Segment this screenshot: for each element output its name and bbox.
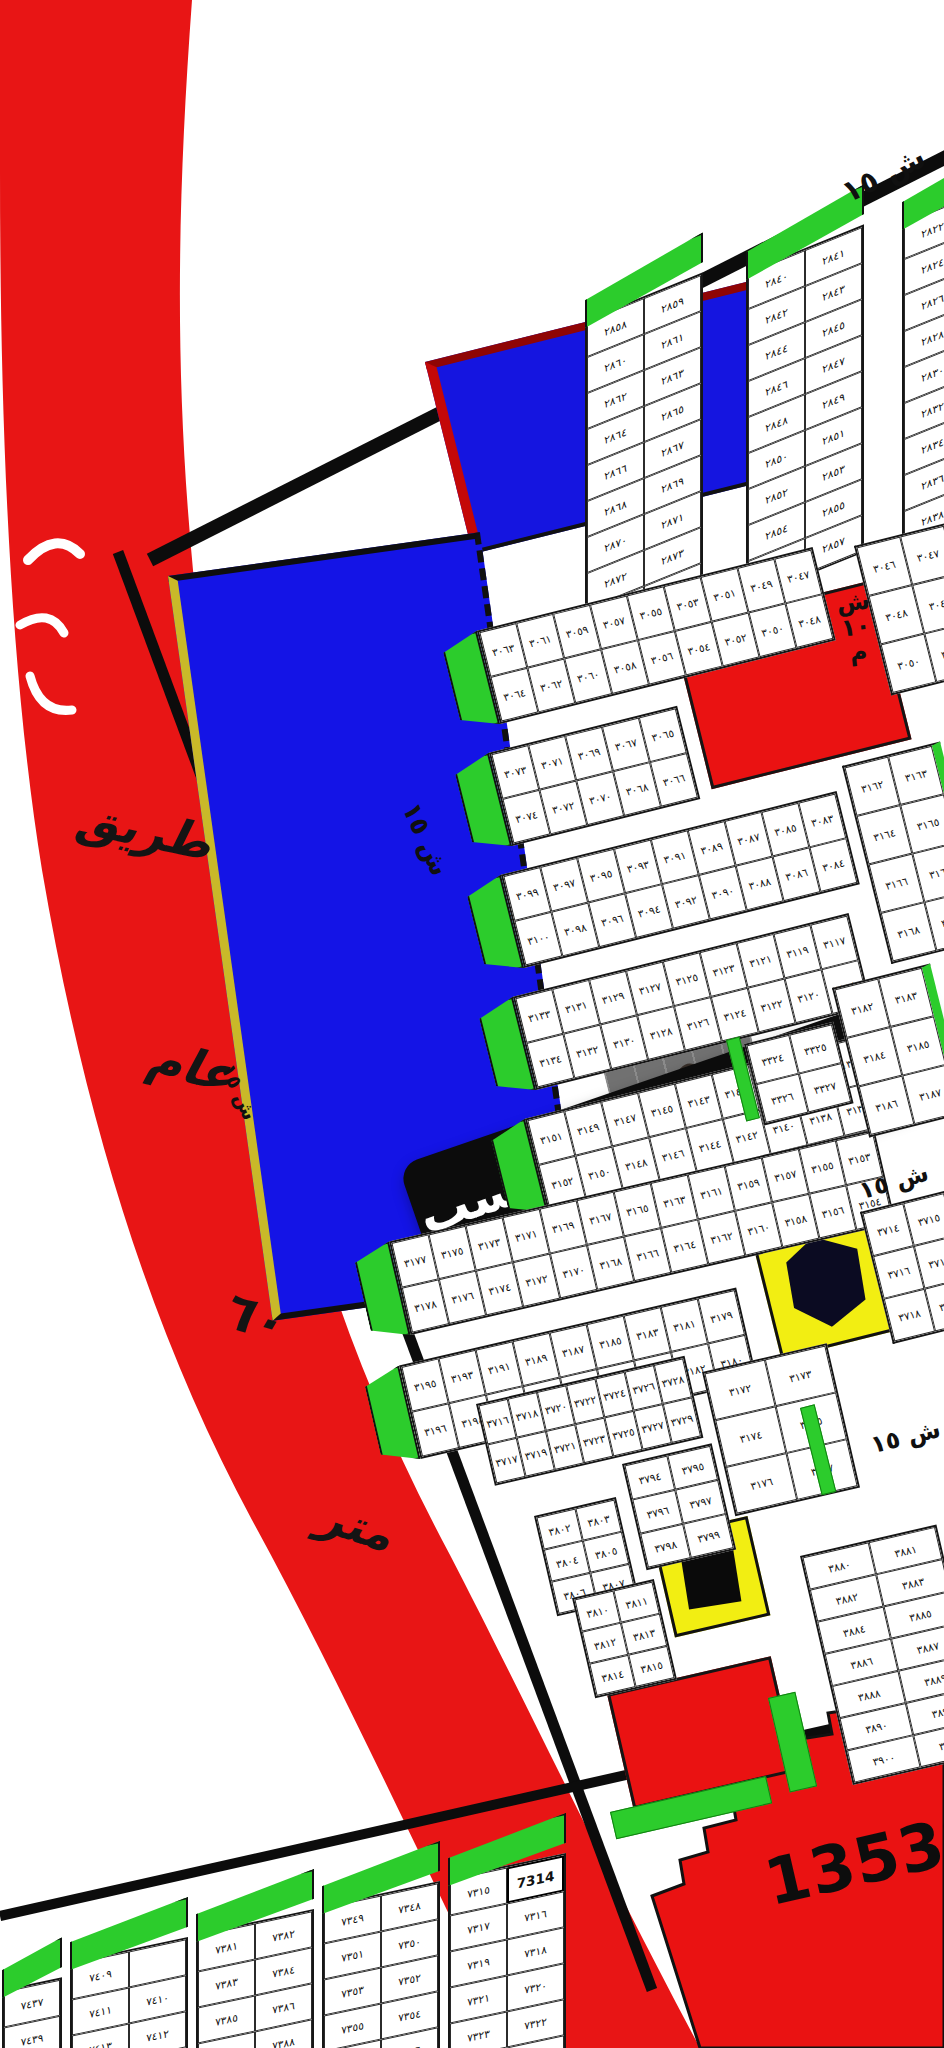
- bottom-column-7348-7361: ٧٣٤٨٧٣٤٩٧٣٥٠٧٣٥١٧٣٥٢٧٣٥٣٧٣٥٤٧٣٥٥٧٣٥٦٧٣٥٧…: [322, 1841, 440, 2048]
- plot-column-2840-2857: ٢٨٤١٢٨٤٠٢٨٤٣٢٨٤٢٢٨٤٥٢٨٤٤٢٨٤٧٢٨٤٦٢٨٤٩٢٨٤٨…: [746, 184, 864, 600]
- plot-map-canvas: طريق عام ٦٠ متر 3145 بسعر مناسب 1353ʻ ٢٨…: [0, 0, 944, 2048]
- bottom-column-7381-7390: ٧٣٨٢٧٣٨١٧٣٨٤٧٣٨٣٧٣٨٦٧٣٨٥٧٣٨٨٧٣٨٧٧٣٩٠٧٣٨٩: [196, 1869, 314, 2048]
- bottom-column-7314-7327: 7314٧٣١٥٧٣١٦٧٣١٧٧٣١٨٧٣١٩٧٣٢٠٧٣٢١٧٣٢٢٧٣٢٣…: [448, 1813, 566, 2048]
- bottom-column-7409-7417: ٧٤٠٩٧٤١٠٧٤١١٧٤١٢٧٤١٣٧٤١٤٧٤١٥٧٤١٦٧٤١٧: [70, 1897, 188, 2048]
- bottom-column-7437: ٧٤٣٧٧٤٣٩٧٤٤١٧٤٤٣: [2, 1937, 62, 2048]
- street-label: ش ١٠ م: [834, 588, 878, 667]
- plot-column-2822-2839: ٢٨٢٣٢٨٢٢٢٨٢٥٢٨٢٤٢٨٢٧٢٨٢٦٢٨٢٩٢٨٢٨٢٨٣١٢٨٣٠…: [902, 134, 944, 550]
